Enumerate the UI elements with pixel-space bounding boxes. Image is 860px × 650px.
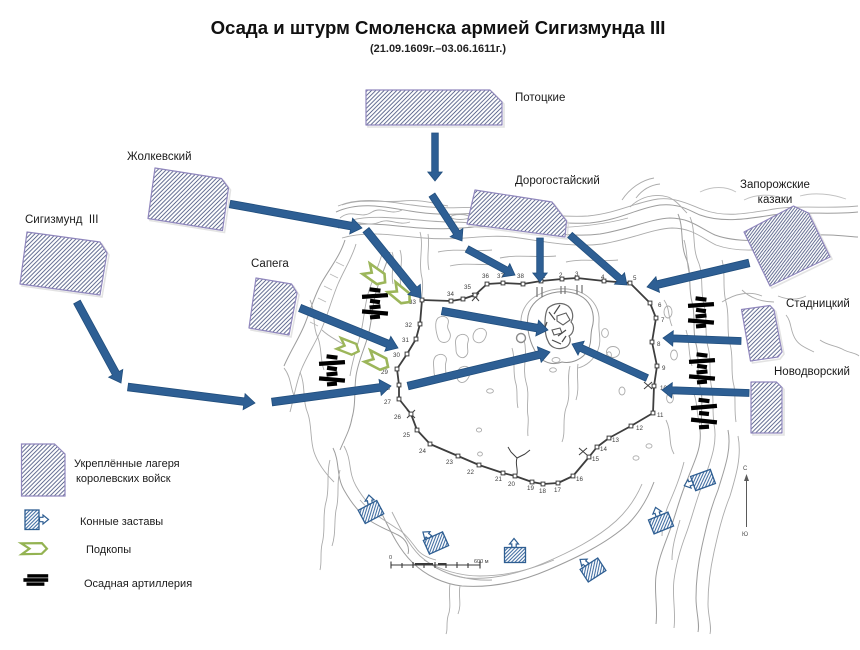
svg-text:6: 6	[658, 302, 662, 309]
svg-text:19: 19	[527, 485, 534, 492]
svg-text:35: 35	[464, 284, 471, 291]
svg-text:38: 38	[517, 273, 524, 280]
svg-text:31: 31	[402, 337, 409, 344]
svg-text:13: 13	[612, 437, 619, 444]
svg-text:9: 9	[662, 365, 666, 372]
svg-text:Конные заставы: Конные заставы	[80, 516, 163, 528]
svg-text:0: 0	[389, 555, 392, 561]
svg-text:5: 5	[633, 275, 637, 282]
svg-text:Осадная артиллерия: Осадная артиллерия	[84, 578, 192, 590]
svg-text:15: 15	[592, 456, 599, 463]
svg-text:3: 3	[575, 271, 579, 278]
svg-text:25: 25	[403, 432, 410, 439]
svg-text:16: 16	[576, 476, 583, 483]
svg-text:27: 27	[384, 399, 391, 406]
svg-text:17: 17	[554, 487, 561, 494]
svg-text:Новодворский: Новодворский	[774, 366, 850, 378]
svg-text:24: 24	[419, 448, 426, 455]
svg-text:Подкопы: Подкопы	[86, 544, 131, 556]
svg-text:казаки: казаки	[758, 194, 793, 206]
svg-text:Запорожские: Запорожские	[740, 179, 810, 191]
svg-text:26: 26	[394, 414, 401, 421]
svg-text:Ю: Ю	[742, 532, 748, 538]
svg-text:18: 18	[539, 488, 546, 495]
svg-text:Жолкевский: Жолкевский	[127, 151, 192, 163]
svg-text:12: 12	[636, 425, 643, 432]
svg-text:11: 11	[657, 412, 664, 419]
svg-text:22: 22	[467, 469, 474, 476]
svg-text:20: 20	[508, 481, 515, 488]
svg-text:С: С	[743, 466, 748, 472]
svg-text:34: 34	[447, 291, 454, 298]
svg-text:Осада и штурм Смоленска армией: Осада и штурм Смоленска армией Сигизмунд…	[211, 17, 666, 38]
svg-text:Дорогостайский: Дорогостайский	[515, 175, 600, 187]
svg-text:Стадницкий: Стадницкий	[786, 298, 850, 310]
svg-text:королевских войск: королевских войск	[76, 473, 171, 485]
svg-text:Сапега: Сапега	[251, 258, 289, 270]
svg-text:8: 8	[657, 341, 661, 348]
svg-text:21: 21	[495, 476, 502, 483]
svg-text:30: 30	[393, 352, 400, 359]
svg-text:14: 14	[600, 446, 607, 453]
svg-text:Укреплённые лагеря: Укреплённые лагеря	[74, 458, 180, 470]
svg-text:600 м: 600 м	[474, 559, 489, 565]
svg-text:(21.09.1609г.–03.06.1611г.): (21.09.1609г.–03.06.1611г.)	[370, 43, 506, 55]
svg-text:Потоцкие: Потоцкие	[515, 92, 565, 104]
svg-text:36: 36	[482, 273, 489, 280]
svg-text:23: 23	[446, 459, 453, 466]
svg-text:7: 7	[661, 317, 665, 324]
svg-text:32: 32	[405, 322, 412, 329]
svg-text:4: 4	[601, 274, 605, 281]
svg-text:2: 2	[559, 272, 563, 279]
svg-text:Сигизмунд III: Сигизмунд III	[25, 214, 98, 226]
